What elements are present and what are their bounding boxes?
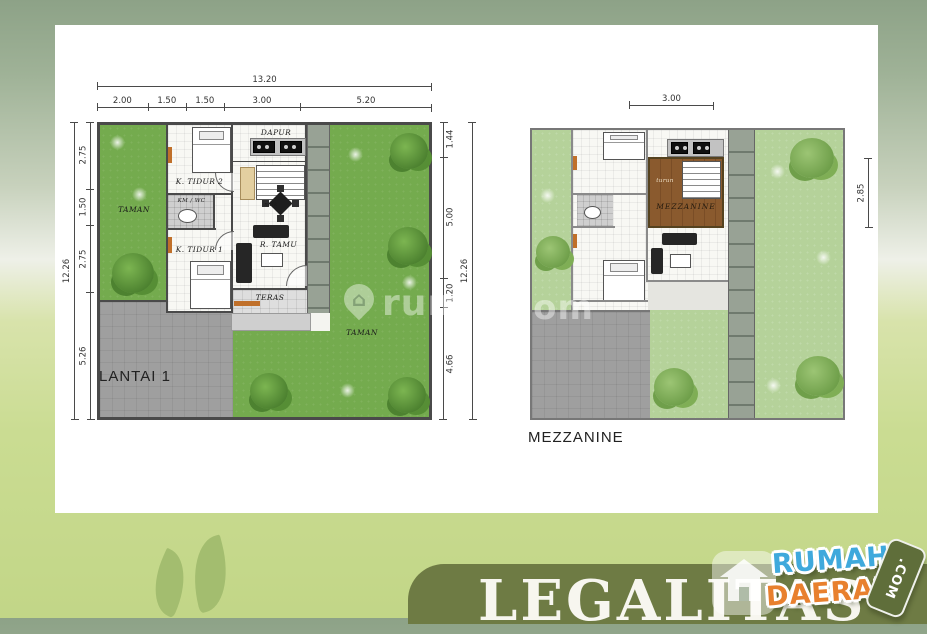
toilet-icon [178,209,197,223]
tree-icon [390,133,428,169]
bed [603,132,645,160]
floor1-right-segments-dim: 1.44 5.00 1.20 4.66 [443,122,457,420]
path-strip [648,282,728,310]
bed [190,261,231,309]
dim-label: 1.50 [157,96,176,106]
floor1-title: LANTAI 1 [99,368,171,385]
dim-segment: 5.20 [300,94,432,108]
tree-icon [790,138,834,178]
dim-label: 13.20 [252,75,276,85]
room-label-r-tamu: R. TAMU [250,240,307,249]
sink-icon [693,142,710,154]
sofa-icon [662,233,697,245]
tree-icon [388,377,426,413]
floor1-left-total-dim: 12.26 [61,122,75,420]
toilet-icon [584,206,601,219]
room-label-taman-left: TAMAN [106,205,162,214]
teras-step [231,313,311,331]
armchair-icon [651,248,663,274]
watermark-text-right: com [512,288,594,328]
dim-label: 12.26 [461,259,471,283]
room-label-dapur: DAPUR [245,128,307,137]
tree-icon [536,236,570,268]
sofa-icon [253,225,289,238]
floor1-top-segments-dim: 2.00 1.50 1.50 3.00 5.20 [97,94,432,108]
garden-left [532,130,573,310]
stove-icon [253,141,275,153]
dim-segment: 1.50 [77,189,91,225]
coffee-table-icon [670,254,691,268]
dim-segment: 12.26 [459,122,473,420]
tree-icon [388,227,428,265]
dim-segment: 2.85 [855,158,869,228]
coffee-table-icon [261,253,283,267]
dim-segment: 13.20 [97,73,432,87]
bed [603,260,645,302]
dim-label: 3.00 [252,96,271,106]
dim-label: 3.00 [662,94,681,104]
sink-icon [280,141,302,153]
dim-label: 5.20 [357,96,376,106]
stairs-down [682,161,721,199]
floor2-title: MEZZANINE [528,429,624,446]
dim-label: 2.85 [857,184,867,203]
floor2-top-dim: 3.00 [629,92,714,106]
dim-segment: 2.75 [77,225,91,292]
dim-segment: 1.50 [186,94,224,108]
stair-landing [240,167,255,200]
dim-segment: 2.00 [97,94,148,108]
floor2-plan: turun MEZZANINE [530,128,845,420]
floor1-right-total-dim: 12.26 [459,122,473,420]
dim-label: 2.00 [113,96,132,106]
room-label-teras: TERAS [237,293,303,302]
room-label-taman-right: TAMAN [332,328,392,337]
logo-text-com: .COM [881,556,911,601]
tree-icon [654,368,694,406]
dim-label: 1.50 [79,198,89,217]
dim-label: 1.50 [195,96,214,106]
carport [100,300,233,417]
dim-label: 5.00 [446,208,456,227]
room-label-turun: turun [650,178,680,184]
floor2-right-dim: 2.85 [855,158,869,228]
garden-right [330,125,429,417]
dim-label: 5.26 [79,347,89,366]
dim-label: 1.44 [446,130,456,149]
dim-segment: 2.75 [77,122,91,189]
dim-label: 4.66 [446,354,456,373]
roof-block-column [728,130,755,418]
room-label-k-tidur-1: K. TIDUR 1 [168,245,231,254]
dim-label: 2.75 [79,146,89,165]
tree-icon [112,253,154,293]
roof-block-column [307,125,330,313]
tree-icon [250,373,288,409]
rumah-daerah-logo: RUMAH DAERAH .COM [700,535,927,618]
floor1-left-segments-dim: 2.75 1.50 2.75 5.26 [77,122,91,420]
watermark-text-left: rum [382,283,466,324]
sprout-leaves-icon [145,538,245,618]
dim-segment: 3.00 [224,94,300,108]
floorplan-card: 13.20 2.00 1.50 1.50 3.00 5.20 12.26 2.7… [55,25,878,513]
house-icon: ⌂ [344,284,374,314]
dim-label: 2.75 [79,249,89,268]
dim-label: 12.26 [63,259,73,283]
dim-segment: 1.44 [443,122,457,157]
dim-segment: 12.26 [61,122,75,420]
dim-segment: 3.00 [629,92,714,106]
room-label-km-wc: KM / WC [168,198,215,204]
tree-icon [796,356,840,396]
room-label-k-tidur-2: K. TIDUR 2 [168,177,231,186]
dim-segment: 5.00 [443,157,457,278]
room-label-naik: naik [256,202,286,208]
watermark-house-pin-icon: ⌂ [338,278,380,320]
dim-segment: 5.26 [77,292,91,420]
dim-segment: 1.50 [148,94,186,108]
bed [192,127,231,173]
stove-icon [671,142,688,154]
room-label-mezzanine: MEZZANINE [650,202,722,211]
armchair-icon [236,243,252,283]
floor1-top-total-dim: 13.20 [97,73,432,87]
